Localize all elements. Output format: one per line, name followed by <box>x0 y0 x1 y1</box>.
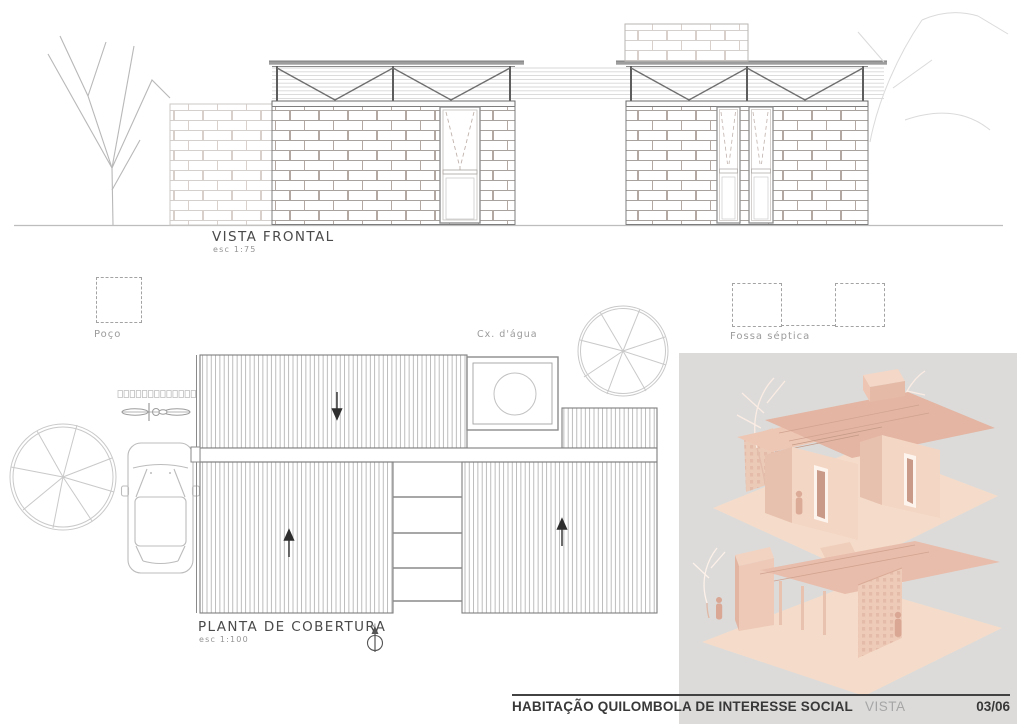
bicycle-symbol <box>122 403 190 421</box>
elevation-tree-left <box>48 36 170 225</box>
roof-plan-drawing <box>0 296 700 660</box>
render-bottom-axonometric <box>693 541 1002 696</box>
septic-tank-symbol-2 <box>835 283 885 327</box>
front-view-scale: esc 1:75 <box>213 245 257 254</box>
front-view-title: VISTA FRONTAL <box>212 229 335 245</box>
roof-slats <box>272 68 884 98</box>
roof-plan-title: PLANTA DE COBERTURA <box>198 619 386 635</box>
front-elevation-drawing <box>0 0 1024 260</box>
render-panel <box>679 353 1017 724</box>
wall-beam-2 <box>626 101 868 107</box>
project-title: HABITAÇÃO QUILOMBOLA DE INTERESSE SOCIAL <box>512 699 853 714</box>
plan-tree-top-right <box>578 306 668 396</box>
north-label: N <box>371 622 376 630</box>
door-volume-1 <box>440 107 480 223</box>
elevation-tree-right-faint <box>858 13 1008 142</box>
render-illustrations <box>679 353 1017 724</box>
page-number: 03/06 <box>976 699 1010 714</box>
roof-edge <box>269 61 887 65</box>
brick-wall-volume-2 <box>626 107 868 225</box>
footer-title-block: HABITAÇÃO QUILOMBOLA DE INTERESSE SOCIAL… <box>512 699 1010 714</box>
roof-hatched-planes <box>200 355 657 613</box>
water-box-plan <box>467 357 558 430</box>
septic-label: Fossa séptica <box>730 331 810 342</box>
sheet-name: VISTA <box>865 699 906 714</box>
cobogo-wall-elevation <box>170 104 272 225</box>
plan-edge-gutter-box <box>191 447 200 462</box>
water-tank-elevation <box>625 24 748 61</box>
pergola-lines <box>393 497 462 601</box>
plan-tree-left <box>10 424 116 530</box>
wall-beam-1 <box>272 101 515 107</box>
render-top-axonometric <box>713 369 998 570</box>
footer-rule <box>512 694 1010 696</box>
roof-plan-scale: esc 1:100 <box>199 635 249 644</box>
architecture-sheet: VISTA FRONTAL esc 1:75 Poço Fossa séptic… <box>0 0 1024 724</box>
septic-connector-line <box>781 325 835 326</box>
paver-walkway-symbol <box>118 391 196 398</box>
septic-tank-symbol-1 <box>732 283 782 327</box>
car-symbol <box>122 443 200 573</box>
door-volume-2-left <box>717 107 740 223</box>
door-volume-2-right <box>749 107 773 223</box>
